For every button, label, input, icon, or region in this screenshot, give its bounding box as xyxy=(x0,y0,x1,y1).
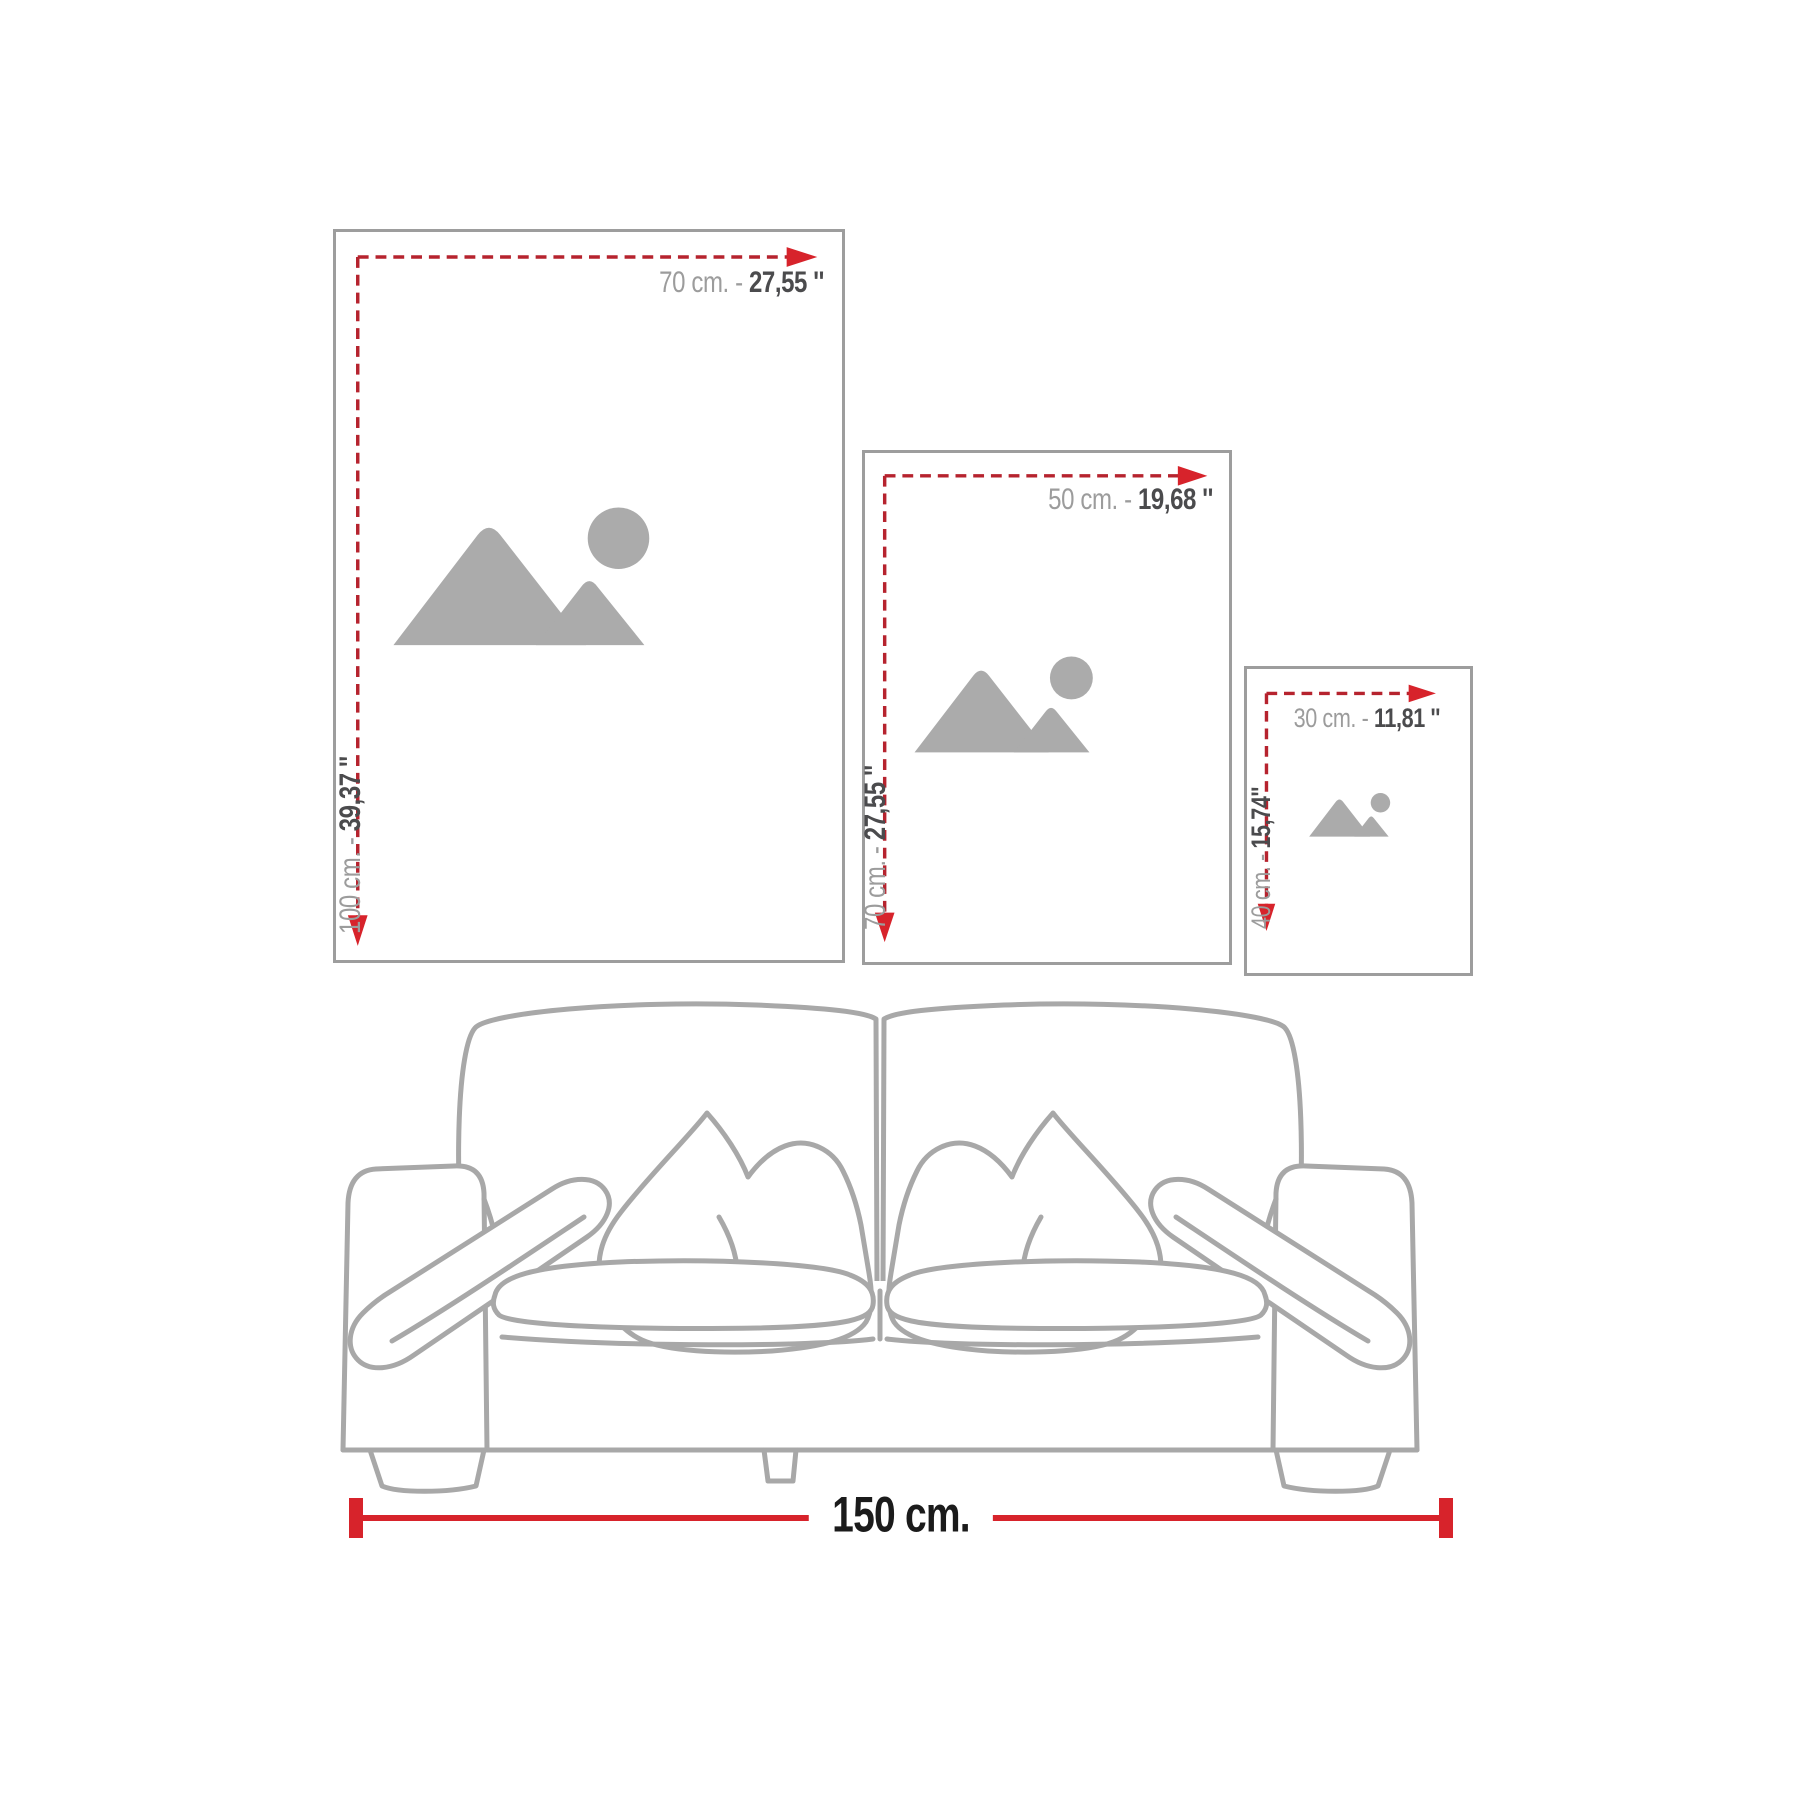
width-dimension-label: 30 cm. - 11,81 '' xyxy=(1294,703,1440,734)
sofa-seat-cushion-right xyxy=(887,1261,1267,1329)
height-imperial: 15,74'' xyxy=(1246,787,1276,849)
sofa-leg-right xyxy=(1276,1450,1390,1491)
image-placeholder-icon xyxy=(901,652,1127,754)
height-dimension-label: 40 cm. - 15,74'' xyxy=(1246,787,1277,929)
sofa-width-dimension: 150 cm. xyxy=(349,1498,1453,1538)
sofa-leg-left xyxy=(370,1450,484,1491)
width-dimension-label: 70 cm. - 27,55 '' xyxy=(659,266,824,300)
height-metric: 40 cm. - xyxy=(1246,849,1276,929)
width-metric: 70 cm. - xyxy=(659,266,749,299)
sun-icon xyxy=(1370,793,1389,812)
poster-frame-50x70: 50 cm. - 19,68 '' 70 cm. - 27,55 '' xyxy=(862,450,1232,965)
width-metric: 50 cm. - xyxy=(1048,483,1138,516)
width-imperial: 11,81 '' xyxy=(1374,703,1440,733)
height-dimension-label: 100 cm. - 39,37 '' xyxy=(334,756,368,934)
sofa-leg-center xyxy=(764,1450,796,1481)
image-placeholder-icon xyxy=(374,501,698,647)
height-imperial: 39,37 '' xyxy=(334,756,367,831)
height-dimension-label: 70 cm. - 27,55 '' xyxy=(859,765,893,930)
sun-icon xyxy=(1050,656,1093,699)
arrow-right-icon xyxy=(1409,685,1436,703)
width-dimension-label: 50 cm. - 19,68 '' xyxy=(1048,483,1213,517)
height-imperial: 27,55 '' xyxy=(859,765,892,840)
arrow-right-icon xyxy=(787,247,818,267)
height-metric: 70 cm. - xyxy=(859,840,892,930)
sofa-illustration xyxy=(290,985,1470,1497)
poster-frame-30x40: 30 cm. - 11,81 '' 40 cm. - 15,74'' xyxy=(1244,666,1473,976)
height-metric: 100 cm. - xyxy=(334,831,367,934)
width-imperial: 27,55 '' xyxy=(749,266,824,299)
sun-icon xyxy=(588,508,650,570)
sofa-width-label: 150 cm. xyxy=(809,1486,993,1544)
poster-frame-70x100: 70 cm. - 27,55 '' 100 cm. - 39,37 '' xyxy=(333,229,845,963)
image-placeholder-icon xyxy=(1303,791,1406,837)
sofa-seat-cushion-left xyxy=(493,1261,873,1329)
size-guide-infographic: 70 cm. - 27,55 '' 100 cm. - 39,37 '' 50 … xyxy=(0,0,1800,1800)
width-imperial: 19,68 '' xyxy=(1138,483,1213,516)
dimension-end-cap-right xyxy=(1439,1498,1453,1538)
width-metric: 30 cm. - xyxy=(1294,703,1374,733)
